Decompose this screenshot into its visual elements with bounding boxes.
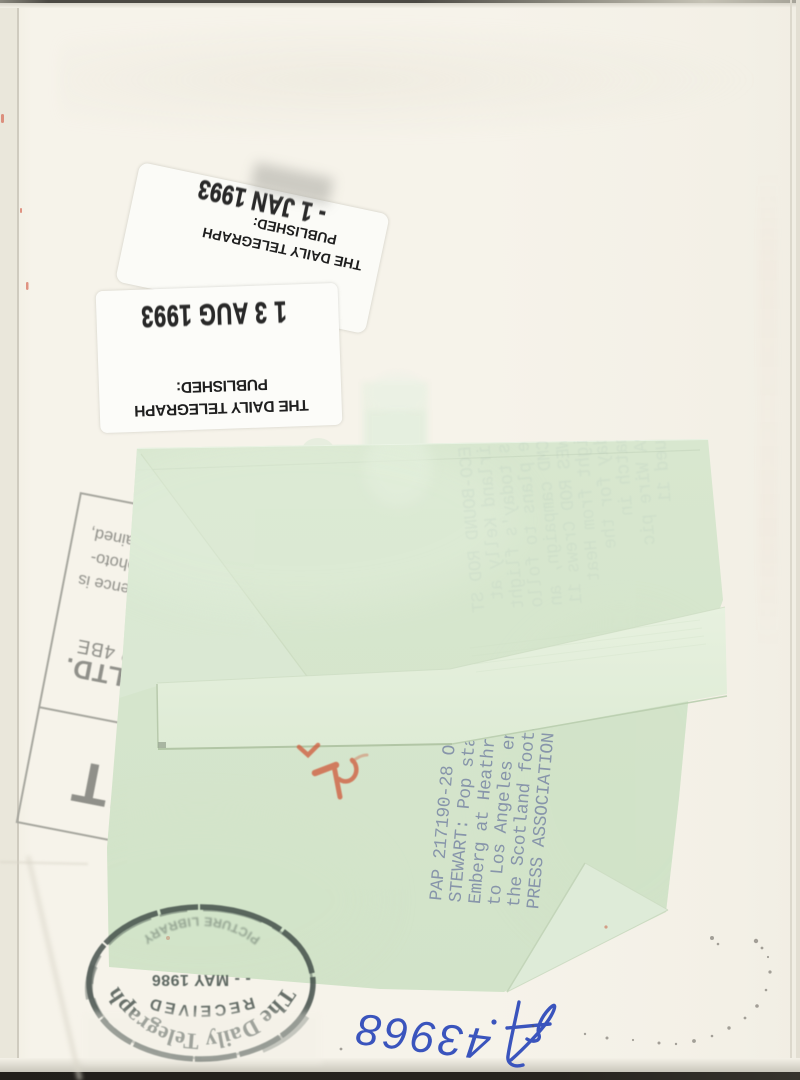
svg-text:- - MAY 1986: - - MAY 1986 <box>151 971 250 988</box>
svg-text:43968: 43968 <box>351 1003 493 1068</box>
